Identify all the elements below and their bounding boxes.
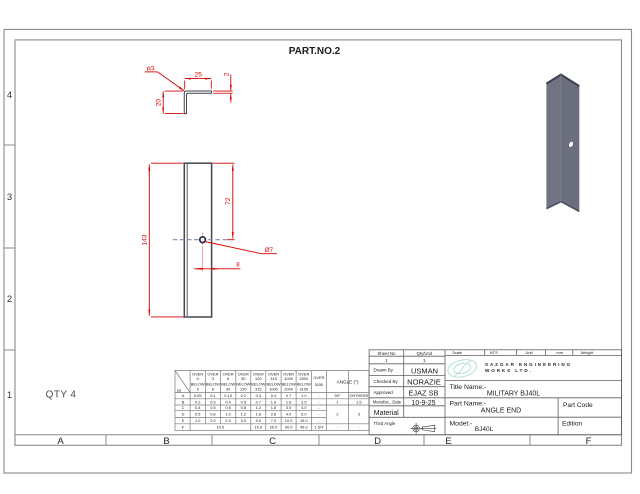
svg-text:C: C: [269, 436, 276, 447]
svg-text:Title Name:-: Title Name:-: [450, 384, 487, 391]
svg-text:Part Name:-: Part Name:-: [450, 401, 487, 408]
svg-text:NTS: NTS: [490, 350, 498, 355]
svg-text:SAZGAR ENGINEERING: SAZGAR ENGINEERING: [485, 362, 572, 367]
svg-text:4.0: 4.0: [286, 411, 292, 416]
svg-text:Drawn By: Drawn By: [374, 368, 394, 373]
svg-text:1: 1: [7, 390, 12, 401]
svg-text:10-9-25: 10-9-25: [411, 400, 435, 407]
svg-text:1.2: 1.2: [256, 405, 261, 410]
svg-text:2.5: 2.5: [225, 418, 230, 423]
svg-text:4.0: 4.0: [301, 405, 307, 410]
svg-text:25: 25: [195, 72, 203, 79]
svg-text:15.0: 15.0: [300, 418, 308, 423]
svg-text:Model:-: Model:-: [450, 421, 473, 428]
svg-text:Sheet No: Sheet No: [378, 351, 397, 356]
svg-text:0.6: 0.6: [225, 405, 230, 410]
svg-text:3: 3: [7, 192, 12, 203]
svg-text:Qty/Unit: Qty/Unit: [417, 351, 433, 356]
svg-text:0.05: 0.05: [194, 393, 202, 398]
svg-text:3150: 3150: [299, 387, 308, 392]
svg-text:2.8: 2.8: [271, 411, 276, 416]
svg-text:Material: Material: [374, 410, 399, 417]
svg-text:2: 2: [7, 294, 12, 305]
svg-text:1.0: 1.0: [195, 418, 201, 423]
svg-text:0.5: 0.5: [210, 405, 215, 410]
svg-text:7.0: 7.0: [271, 418, 277, 423]
svg-text:NORAZIE: NORAZIE: [407, 378, 441, 387]
svg-text:Manufac., Date: Manufac., Date: [373, 400, 402, 405]
svg-text:F: F: [586, 436, 592, 447]
svg-text:Unit: Unit: [525, 350, 533, 355]
svg-text:315: 315: [255, 387, 262, 392]
svg-text:20.0: 20.0: [270, 425, 278, 430]
svg-text:0.7: 0.7: [256, 399, 261, 404]
svg-text:E: E: [445, 436, 451, 447]
svg-text:1.0: 1.0: [301, 393, 307, 398]
svg-text:1.0: 1.0: [225, 411, 231, 416]
svg-text:Edition: Edition: [562, 421, 582, 428]
svg-text:0.4: 0.4: [271, 393, 277, 398]
svg-text:2: 2: [336, 411, 338, 416]
svg-text:Approved: Approved: [374, 390, 394, 395]
svg-text:72: 72: [225, 197, 232, 205]
svg-text:0.8: 0.8: [241, 405, 246, 410]
svg-text:ORTHERS: ORTHERS: [349, 393, 368, 398]
svg-text:Checked By: Checked By: [374, 379, 399, 384]
svg-text:B: B: [163, 436, 169, 447]
svg-text:QTY 4: QTY 4: [46, 389, 77, 400]
svg-text:0.2: 0.2: [195, 399, 200, 404]
svg-text:mm: mm: [556, 350, 563, 355]
svg-text:1.2: 1.2: [241, 411, 246, 416]
svg-text:OVER: OVER: [313, 375, 324, 380]
svg-text:120: 120: [240, 387, 247, 392]
svg-text:5.0: 5.0: [256, 418, 262, 423]
svg-text:PART.NO.2: PART.NO.2: [289, 46, 341, 57]
svg-text:6: 6: [227, 376, 229, 381]
svg-text:0.15: 0.15: [224, 393, 232, 398]
svg-text:0.3: 0.3: [256, 393, 261, 398]
svg-text:3.5: 3.5: [241, 418, 246, 423]
svg-text:3150: 3150: [315, 382, 324, 387]
svg-text:30.0: 30.0: [285, 425, 293, 430]
svg-text:2: 2: [224, 72, 231, 76]
svg-text:B: B: [182, 399, 185, 404]
svg-text:1: 1: [336, 399, 338, 404]
svg-text:6.0: 6.0: [301, 411, 307, 416]
svg-text:WORKS LTD.: WORKS LTD.: [485, 368, 533, 373]
svg-text:1000: 1000: [284, 376, 293, 381]
svg-text:3.0: 3.0: [286, 405, 292, 410]
svg-text:90°: 90°: [335, 393, 341, 398]
svg-text:315: 315: [270, 376, 277, 381]
svg-text:1.5: 1.5: [356, 399, 361, 404]
svg-text:2000: 2000: [299, 376, 308, 381]
svg-text:3: 3: [197, 387, 199, 392]
svg-text:1000: 1000: [269, 387, 278, 392]
svg-text:10.0: 10.0: [285, 418, 293, 423]
svg-text:EJAZ SB: EJAZ SB: [409, 389, 439, 398]
svg-text:1.0: 1.0: [271, 399, 277, 404]
svg-text:E: E: [182, 418, 185, 423]
svg-text:MILITARY BJ40L: MILITARY BJ40L: [487, 391, 540, 398]
svg-text:C: C: [182, 405, 185, 410]
svg-text:120: 120: [255, 376, 262, 381]
svg-text:1.5%: 1.5%: [314, 425, 323, 430]
svg-text:1.6: 1.6: [271, 405, 276, 410]
svg-text:4: 4: [7, 90, 12, 101]
svg-text:0.1: 0.1: [210, 393, 215, 398]
svg-text:0.8: 0.8: [210, 411, 215, 416]
svg-text:Third Angle: Third Angle: [374, 421, 396, 426]
svg-text:D: D: [182, 411, 185, 416]
svg-text:3: 3: [358, 411, 360, 416]
svg-text:A: A: [57, 436, 64, 447]
svg-text:0.3: 0.3: [210, 399, 215, 404]
svg-text:2.5: 2.5: [301, 399, 306, 404]
svg-text:0.5: 0.5: [241, 399, 246, 404]
svg-text:15.0: 15.0: [255, 425, 263, 430]
svg-text:ANGLE END: ANGLE END: [481, 408, 521, 415]
svg-text:D: D: [374, 436, 381, 447]
svg-text:ANGLE (°): ANGLE (°): [337, 379, 359, 384]
svg-text:0.4: 0.4: [225, 399, 231, 404]
svg-text:Ø7: Ø7: [264, 247, 273, 254]
svg-text:Scale: Scale: [452, 350, 463, 355]
svg-text:20: 20: [155, 99, 162, 107]
svg-text:(a): (a): [177, 388, 181, 392]
svg-text:Weight: Weight: [581, 350, 594, 355]
svg-text:3: 3: [212, 376, 214, 381]
svg-text:Part Code: Part Code: [563, 402, 593, 409]
svg-text:2.0: 2.0: [210, 418, 216, 423]
svg-text:0.7: 0.7: [286, 393, 291, 398]
svg-text:6: 6: [212, 387, 214, 392]
svg-text:143: 143: [141, 234, 148, 245]
svg-text:0.4: 0.4: [195, 405, 201, 410]
svg-text:0.5: 0.5: [195, 411, 200, 416]
svg-text:2000: 2000: [284, 387, 293, 392]
svg-text:0.2: 0.2: [241, 393, 246, 398]
svg-text:45.0: 45.0: [300, 425, 308, 430]
svg-text:A: A: [182, 393, 185, 398]
svg-text:USMAN: USMAN: [411, 366, 438, 375]
svg-text:1.6: 1.6: [286, 399, 291, 404]
svg-text:10.0: 10.0: [217, 425, 225, 430]
svg-text:BJ40L: BJ40L: [475, 426, 494, 433]
svg-text:1.8: 1.8: [256, 411, 261, 416]
